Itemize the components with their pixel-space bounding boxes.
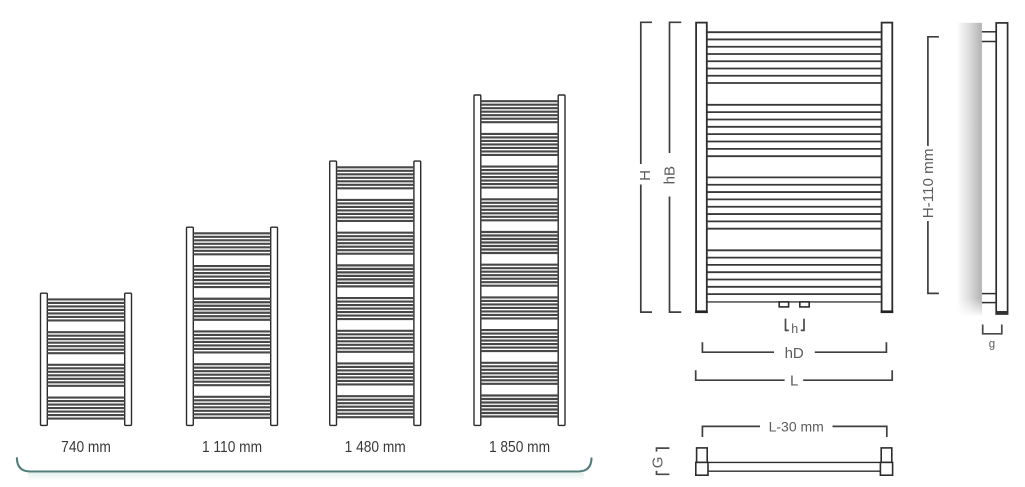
svg-text:L: L: [790, 373, 798, 390]
svg-text:hB: hB: [662, 166, 679, 184]
svg-text:L-30 mm: L-30 mm: [769, 418, 824, 434]
svg-text:H-110 mm: H-110 mm: [920, 149, 937, 219]
svg-text:h: h: [791, 322, 798, 336]
svg-text:1 850 mm: 1 850 mm: [489, 438, 550, 456]
svg-text:g: g: [989, 339, 995, 351]
svg-text:hD: hD: [785, 345, 804, 362]
svg-text:G: G: [649, 457, 666, 469]
svg-text:1 110 mm: 1 110 mm: [202, 438, 262, 456]
svg-text:1 480 mm: 1 480 mm: [345, 438, 406, 456]
svg-text:740 mm: 740 mm: [61, 438, 111, 456]
svg-text:H: H: [637, 170, 654, 181]
